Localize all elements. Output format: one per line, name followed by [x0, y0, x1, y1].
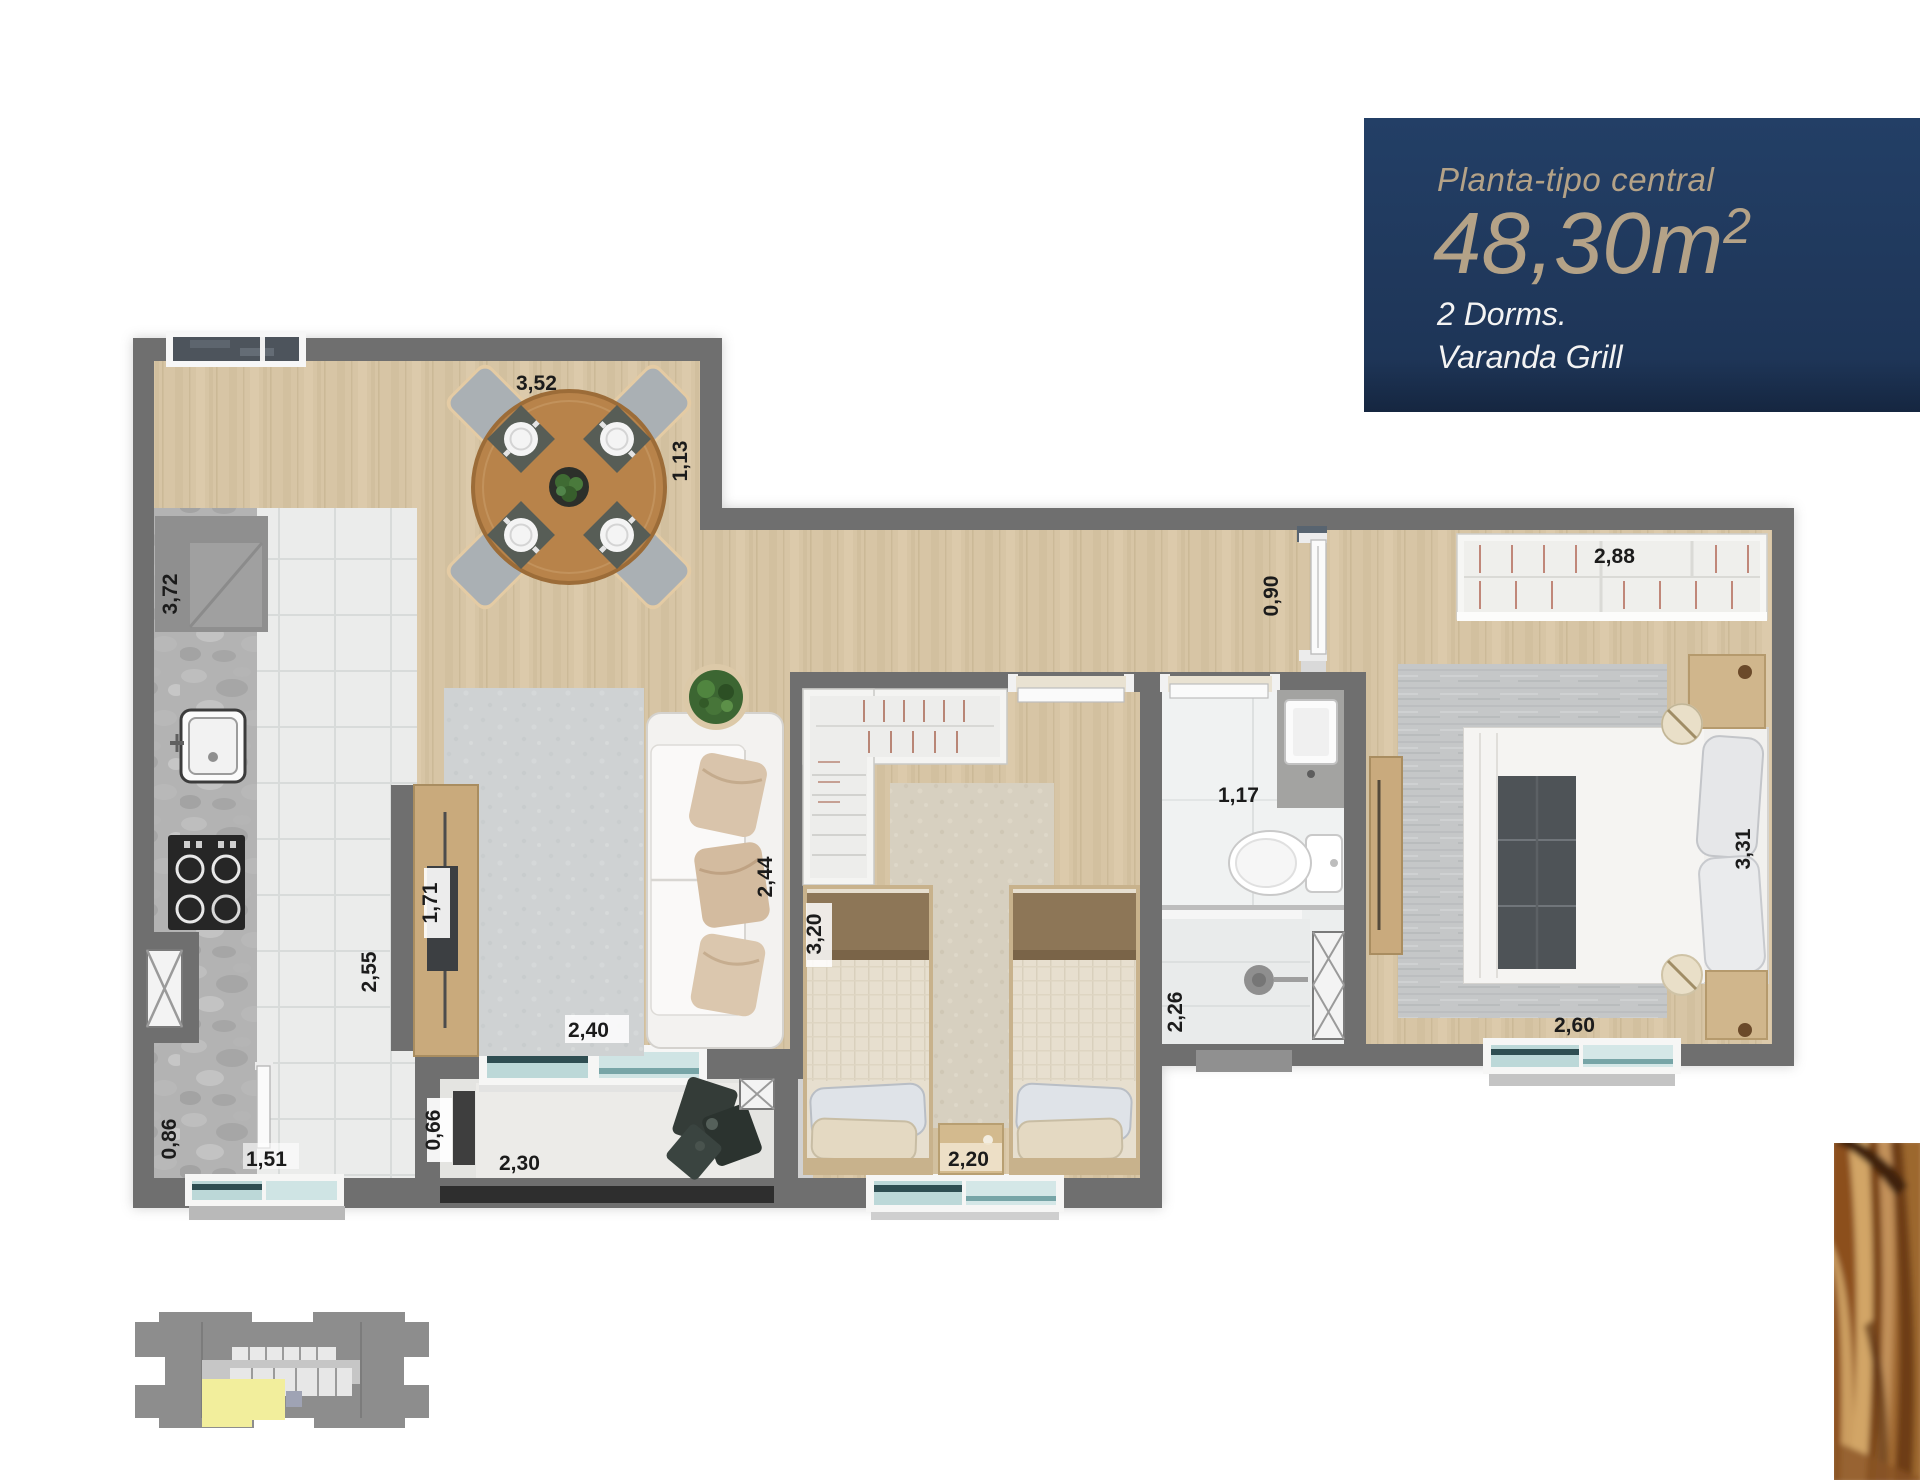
svg-text:1,71: 1,71: [419, 882, 442, 923]
svg-text:2,30: 2,30: [499, 1152, 540, 1175]
svg-text:2,88: 2,88: [1594, 545, 1635, 568]
svg-text:2,20: 2,20: [948, 1148, 989, 1171]
svg-text:0,86: 0,86: [158, 1119, 181, 1160]
svg-text:2 Dorms.: 2 Dorms.: [1436, 296, 1567, 332]
svg-text:Varanda Grill: Varanda Grill: [1437, 339, 1623, 375]
svg-text:3,20: 3,20: [803, 914, 826, 955]
svg-text:1,51: 1,51: [246, 1148, 287, 1171]
svg-text:2,60: 2,60: [1554, 1014, 1595, 1037]
svg-text:1,13: 1,13: [669, 441, 692, 482]
svg-text:2,55: 2,55: [358, 951, 381, 992]
svg-text:3,52: 3,52: [516, 372, 557, 395]
svg-text:3,31: 3,31: [1732, 828, 1755, 869]
svg-text:0,90: 0,90: [1260, 576, 1283, 617]
svg-text:48,30m2: 48,30m2: [1433, 195, 1751, 292]
svg-text:0,66: 0,66: [422, 1110, 445, 1151]
svg-text:Planta-tipo central: Planta-tipo central: [1437, 161, 1715, 198]
svg-text:1,17: 1,17: [1218, 784, 1259, 807]
svg-text:2,26: 2,26: [1164, 992, 1187, 1033]
svg-text:3,72: 3,72: [159, 574, 182, 615]
svg-text:2,40: 2,40: [568, 1019, 609, 1042]
svg-text:2,44: 2,44: [754, 856, 777, 897]
